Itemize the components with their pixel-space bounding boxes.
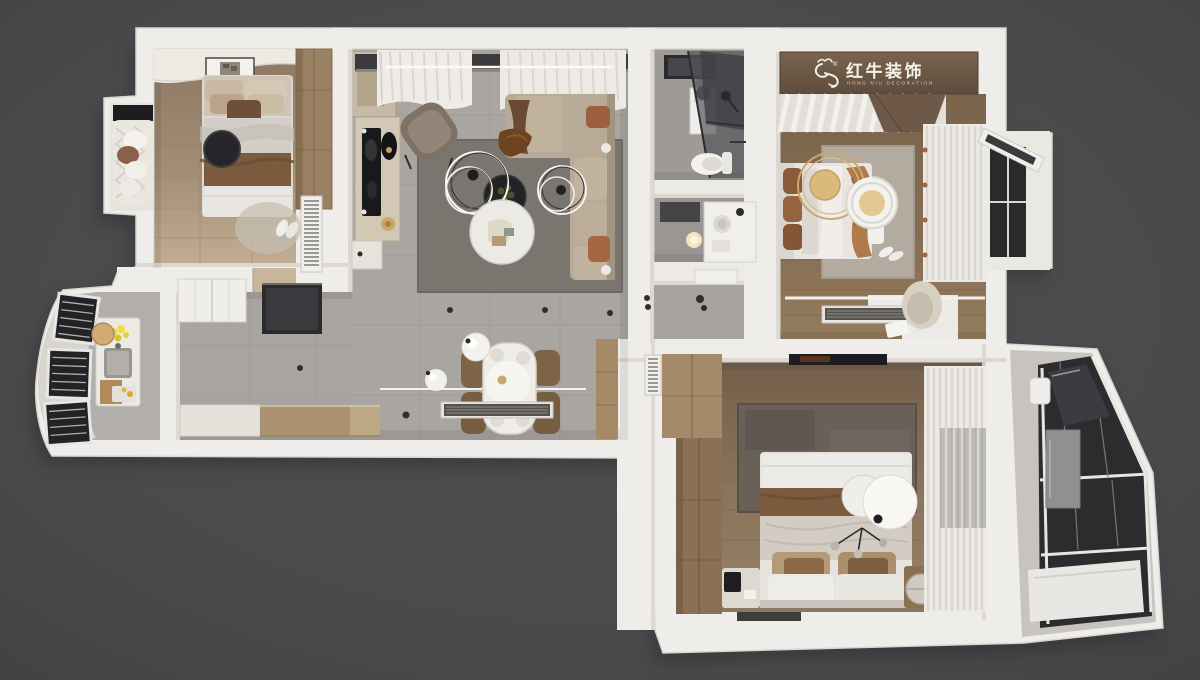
svg-text:红牛装饰: 红牛装饰 (846, 61, 924, 81)
svg-text:HONG NIU DECORATION: HONG NIU DECORATION (847, 81, 934, 86)
svg-text:®: ® (833, 61, 838, 68)
